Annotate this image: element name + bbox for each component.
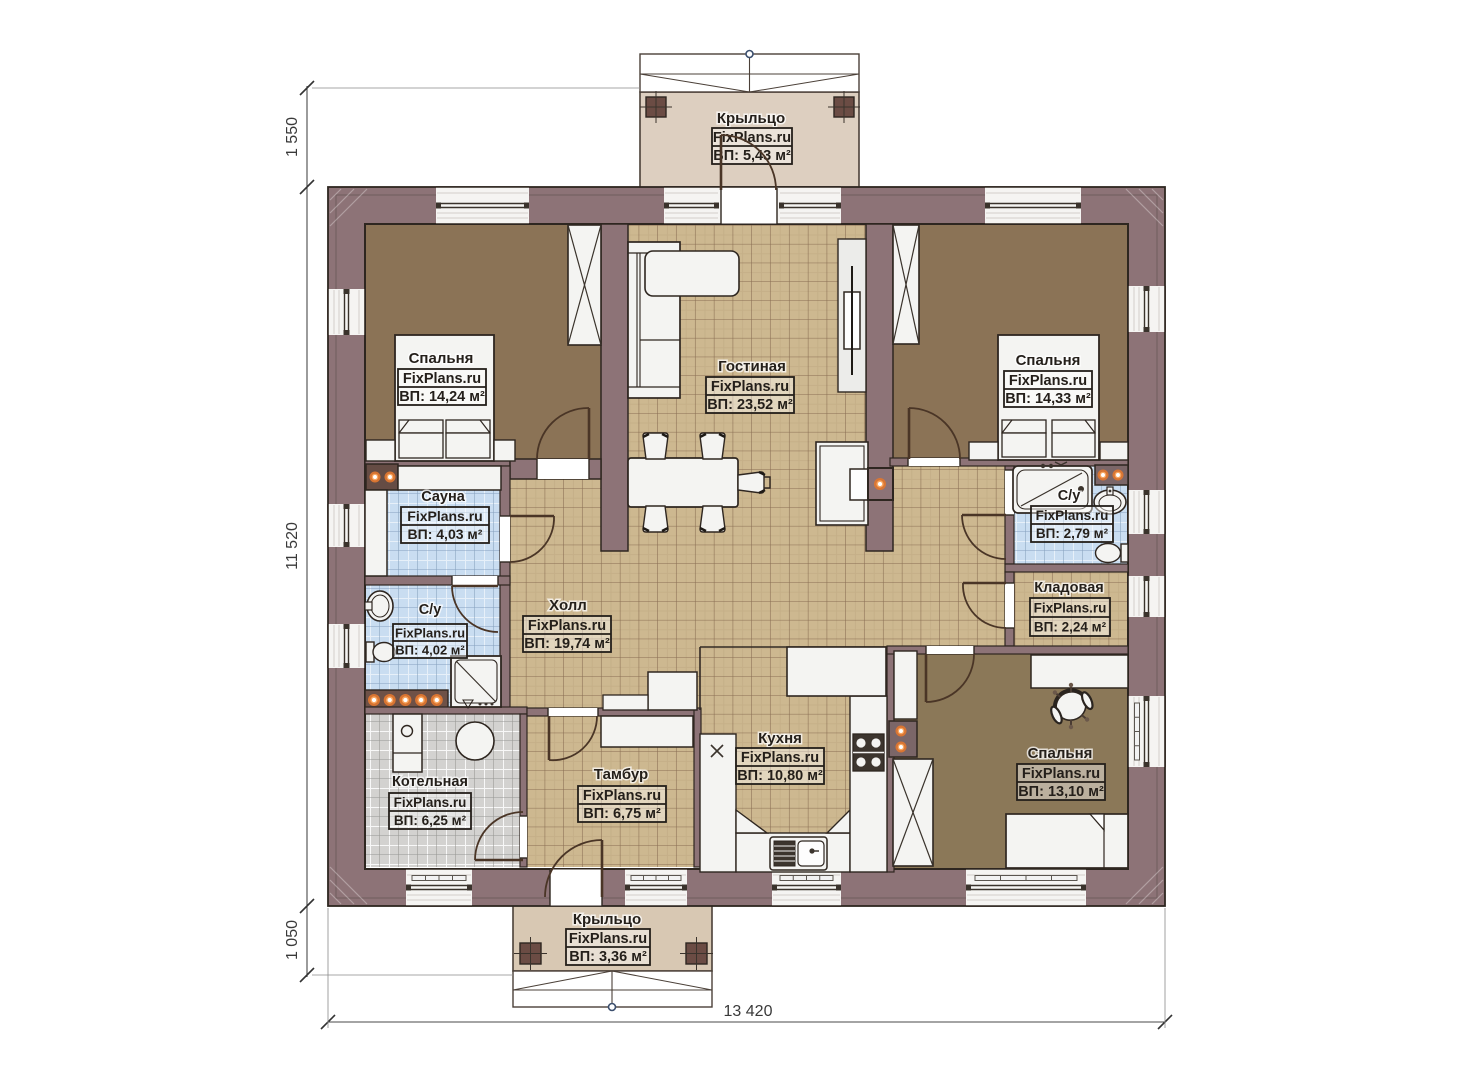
svg-text:Сауна: Сауна (421, 489, 466, 505)
svg-text:Тамбур: Тамбур (594, 766, 648, 783)
svg-text:ВП: 2,24 м²: ВП: 2,24 м² (1034, 620, 1107, 635)
svg-text:ВП: 10,80 м²: ВП: 10,80 м² (737, 768, 823, 784)
svg-text:FixPlans.ru: FixPlans.ru (403, 371, 481, 387)
svg-text:FixPlans.ru: FixPlans.ru (569, 931, 647, 947)
svg-text:Крыльцо: Крыльцо (573, 911, 641, 928)
svg-text:Кухня: Кухня (758, 730, 802, 747)
svg-text:ВП: 6,25 м²: ВП: 6,25 м² (394, 813, 467, 828)
svg-text:Крыльцо: Крыльцо (717, 110, 785, 127)
svg-text:Холл: Холл (549, 597, 587, 614)
svg-text:Гостиная: Гостиная (718, 358, 786, 375)
svg-text:ВП: 14,24 м²: ВП: 14,24 м² (399, 389, 485, 405)
svg-text:ВП: 4,03 м²: ВП: 4,03 м² (408, 526, 483, 542)
svg-text:ВП: 4,02 м²: ВП: 4,02 м² (395, 643, 465, 658)
svg-text:ВП: 6,75 м²: ВП: 6,75 м² (583, 806, 661, 822)
svg-text:FixPlans.ru: FixPlans.ru (741, 750, 819, 766)
svg-text:ВП: 19,74 м²: ВП: 19,74 м² (524, 636, 610, 652)
svg-text:ВП: 3,36 м²: ВП: 3,36 м² (569, 949, 647, 965)
svg-text:FixPlans.ru: FixPlans.ru (1034, 601, 1107, 616)
svg-text:11 520: 11 520 (284, 522, 301, 570)
svg-text:FixPlans.ru: FixPlans.ru (528, 618, 606, 634)
svg-text:Спальня: Спальня (1016, 352, 1081, 369)
svg-text:С/у: С/у (419, 602, 442, 618)
svg-text:FixPlans.ru: FixPlans.ru (711, 379, 789, 395)
svg-text:ВП: 5,43 м²: ВП: 5,43 м² (713, 148, 791, 164)
svg-text:FixPlans.ru: FixPlans.ru (1036, 508, 1109, 523)
svg-text:ВП: 23,52 м²: ВП: 23,52 м² (707, 397, 793, 413)
svg-text:Котельная: Котельная (392, 774, 468, 790)
svg-text:Спальня: Спальня (1028, 745, 1093, 762)
svg-text:Спальня: Спальня (409, 350, 474, 367)
svg-text:ВП: 2,79 м²: ВП: 2,79 м² (1036, 526, 1109, 541)
svg-text:FixPlans.ru: FixPlans.ru (407, 508, 482, 524)
svg-text:FixPlans.ru: FixPlans.ru (1022, 766, 1100, 782)
svg-text:ВП: 13,10 м²: ВП: 13,10 м² (1018, 784, 1104, 800)
svg-text:FixPlans.ru: FixPlans.ru (394, 795, 467, 810)
svg-text:13 420: 13 420 (724, 1003, 773, 1020)
svg-text:1 550: 1 550 (284, 117, 301, 157)
svg-text:FixPlans.ru: FixPlans.ru (583, 788, 661, 804)
svg-text:ВП: 14,33 м²: ВП: 14,33 м² (1005, 391, 1091, 407)
svg-text:FixPlans.ru: FixPlans.ru (1009, 373, 1087, 389)
svg-text:С/у: С/у (1058, 488, 1081, 504)
svg-text:Кладовая: Кладовая (1034, 580, 1103, 596)
svg-text:FixPlans.ru: FixPlans.ru (395, 626, 465, 641)
svg-text:1 050: 1 050 (284, 920, 301, 960)
